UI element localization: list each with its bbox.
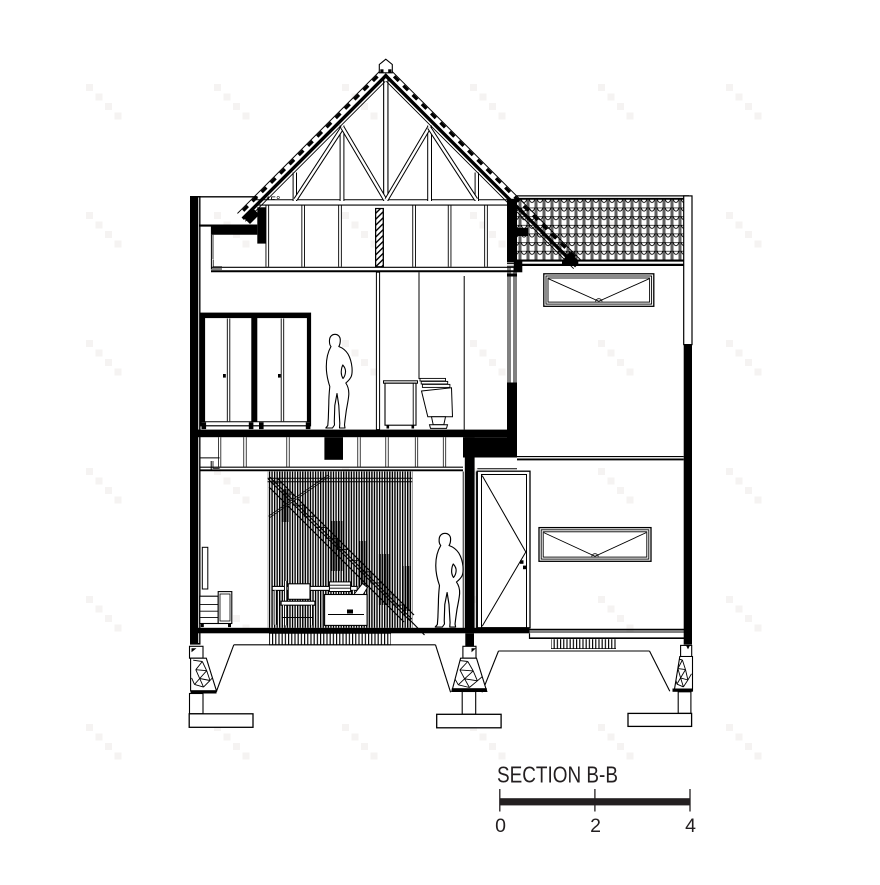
svg-text:2: 2 [590,815,601,837]
svg-text:4: 4 [685,815,696,837]
svg-text:SECTION B-B: SECTION B-B [497,762,618,788]
svg-text:0: 0 [495,815,506,837]
